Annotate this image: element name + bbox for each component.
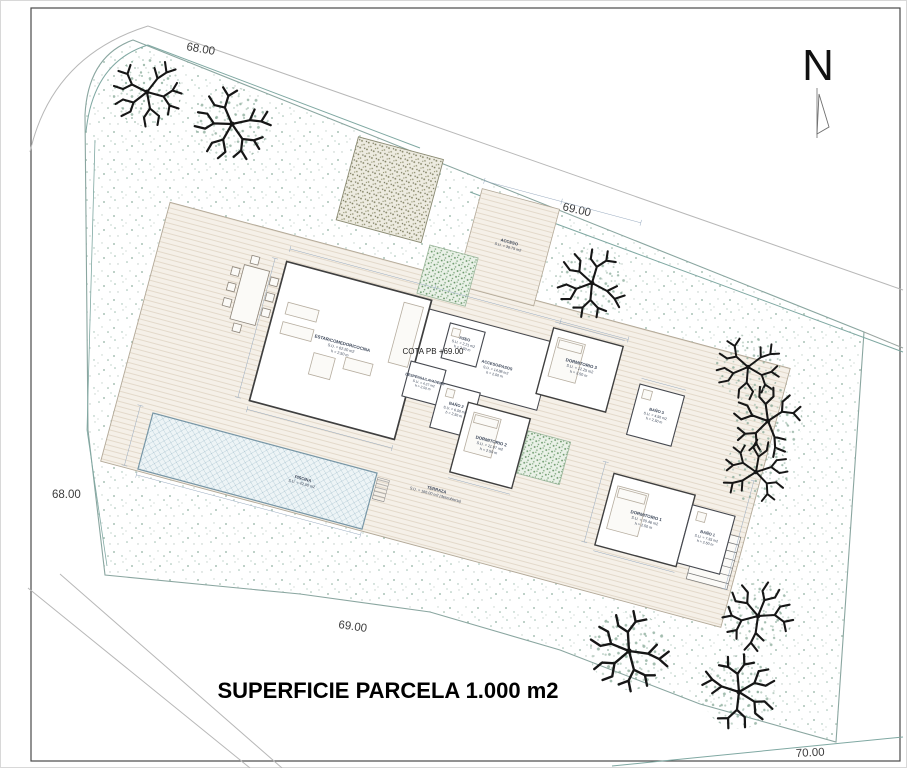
north-label: N bbox=[802, 41, 834, 90]
cota-label: COTA PB +69.00 bbox=[403, 347, 465, 356]
north-arrow: N bbox=[802, 41, 834, 138]
site-plan-svg: 68.00 69.00 68.00 69.00 70.00 bbox=[0, 0, 907, 768]
road-bottom-left bbox=[28, 574, 282, 768]
elevation-label-bottom-right: 70.00 bbox=[796, 747, 825, 760]
north-arrow-head bbox=[817, 94, 829, 134]
elevation-label-bottom: 69.00 bbox=[338, 619, 368, 635]
tree-icon bbox=[113, 58, 182, 127]
site-plan-page: 68.00 69.00 68.00 69.00 70.00 bbox=[0, 0, 907, 768]
page-title: SUPERFICIE PARCELA 1.000 m2 bbox=[217, 678, 558, 703]
elevation-label-left: 68.00 bbox=[52, 489, 81, 501]
contour-70-bottom bbox=[612, 737, 903, 766]
elevation-label-top: 68.00 bbox=[185, 41, 215, 58]
